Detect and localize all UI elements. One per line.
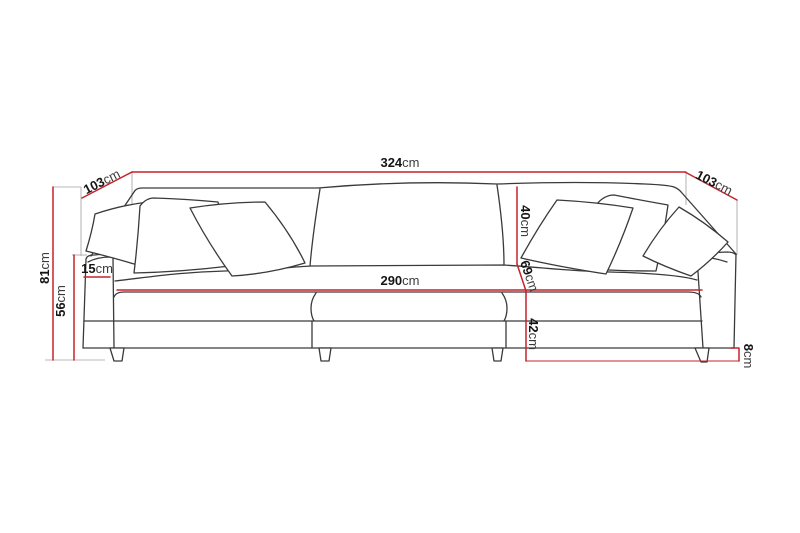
sofa-dimension-diagram: 324cm 103cm 103cm 81cm 56cm 15cm 290cm 4… [0,0,800,533]
pillows-left [86,198,305,276]
dim-unit: cm [53,285,68,302]
dim-label-overall-width: 324cm [380,156,419,170]
dim-label-seat-height: 42cm [526,318,540,350]
witness-left-top [53,187,81,256]
dim-unit: cm [526,333,541,350]
back-cushion-seam-right [497,185,504,265]
dim-value: 290 [380,273,402,288]
legs [110,348,709,362]
diagram-drawing [0,0,800,533]
dim-label-arm-height: 56cm [54,285,68,317]
back-cushion-seam-left [310,189,320,266]
dim-label-seat-width: 290cm [380,274,419,288]
dim-value: 15 [81,261,95,276]
dim-value: 40 [518,205,533,219]
seat-front-edge [114,292,701,297]
dim-line-leg-height [731,348,739,361]
dim-value: 42 [526,318,541,332]
dim-unit: cm [402,273,419,288]
dim-unit: cm [518,220,533,237]
dim-label-back-cushion-height: 40cm [518,205,532,237]
seat-cushion-seam-left [311,293,316,321]
dim-unit: cm [402,155,419,170]
seat-cushion-seam-right [502,293,507,321]
leg [695,348,709,362]
leg [110,348,124,361]
leg [492,348,503,361]
dim-unit: cm [96,261,113,276]
pillows-right [521,195,728,276]
dim-value: 81 [37,269,52,283]
dim-value: 324 [380,155,402,170]
leg [319,348,331,361]
dim-value: 56 [53,302,68,316]
dim-unit: cm [37,252,52,269]
dim-label-arm-width: 15cm [81,262,113,276]
dim-unit: cm [741,351,756,368]
dim-label-overall-height: 81cm [38,252,52,284]
dim-label-leg-height: 8cm [741,344,755,369]
